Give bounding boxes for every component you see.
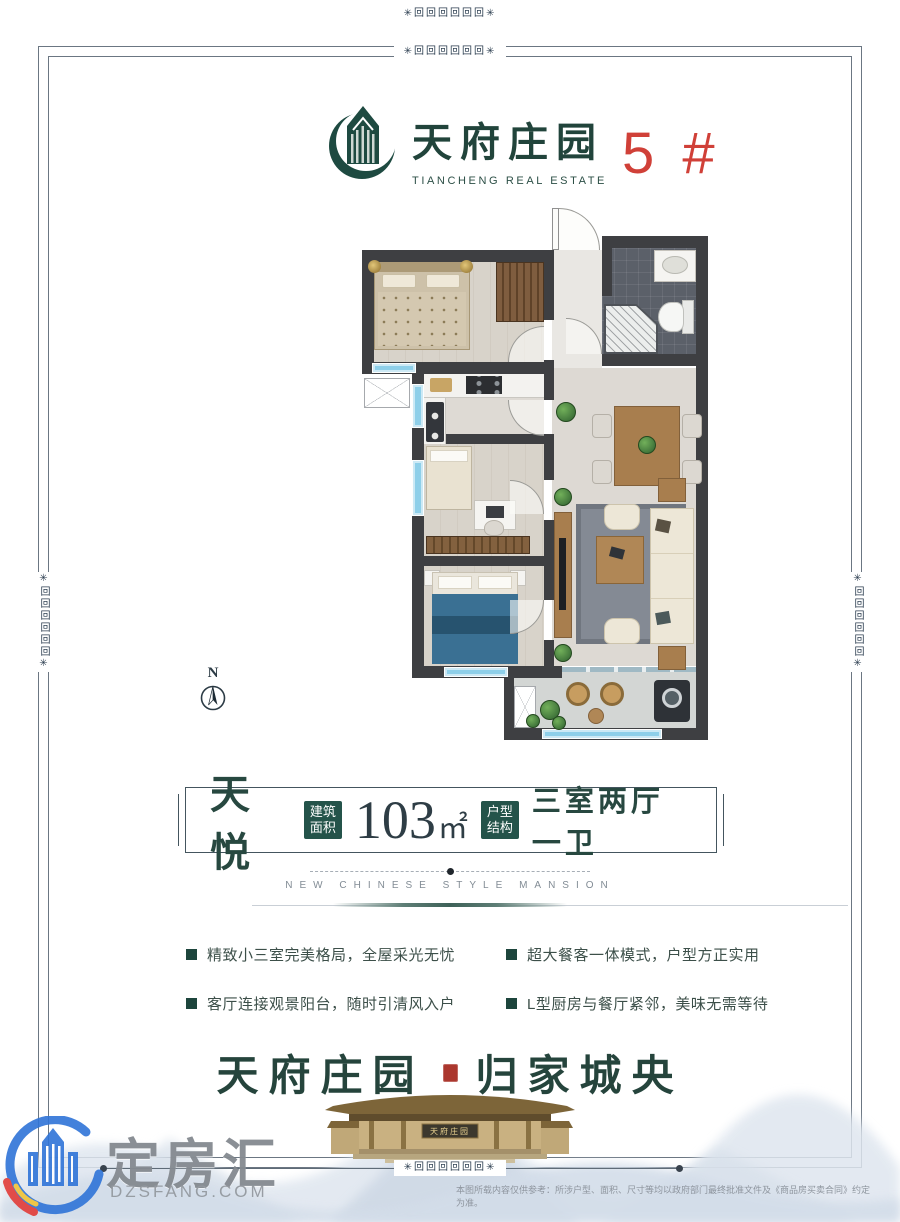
square-bullet-icon <box>186 998 197 1009</box>
square-bullet-icon <box>506 998 517 1009</box>
coffee-table <box>596 536 644 584</box>
layout-badge-top: 户型 <box>481 804 519 820</box>
plant <box>552 716 566 730</box>
wall <box>602 354 696 366</box>
bedside-lamp <box>460 260 473 273</box>
feature-item: L型厨房与餐厅紧邻，美味无需等待 <box>506 993 826 1014</box>
wall <box>544 440 554 480</box>
area-value: 103 <box>355 793 436 847</box>
wall <box>602 236 706 248</box>
compass-north-label: N <box>208 665 219 681</box>
area-badge: 建筑 面积 <box>304 801 342 839</box>
spec-bar: 天悦 建筑 面积 103 ㎡ 户型 结构 三室两厅一卫 <box>185 787 717 853</box>
balcony-table <box>588 708 604 724</box>
pillow <box>438 576 472 589</box>
feature-item: 客厅连接观景阳台，随时引清风入户 <box>186 993 506 1014</box>
lounge-chair <box>566 682 590 706</box>
compass-icon <box>198 682 228 712</box>
gate-building-art: 天府庄园 <box>325 1080 575 1172</box>
meander-ornament-bottom: ✳回回回回回回✳ <box>394 1160 506 1176</box>
brand-logo-icon <box>326 100 400 184</box>
duvet <box>378 292 466 346</box>
meander-ornament-top: ✳回回回回回回✳ <box>394 44 506 60</box>
feature-text: 超大餐客一体模式，户型方正实用 <box>527 944 760 965</box>
armchair <box>604 504 640 530</box>
ac-unit-platform <box>364 378 410 408</box>
poster-canvas: ✳回回回回回回✳ ✳回回回回回回✳ ✳回回回回回回✳ ✳回回回回回回✳ 天府庄园… <box>0 0 900 1222</box>
meander-ornament-left: ✳回回回回回回✳ <box>35 572 51 672</box>
gate-plaque: 天府庄园 <box>430 1126 470 1136</box>
rule-end-dot <box>676 1165 683 1172</box>
features-right-column: 超大餐客一体模式，户型方正实用 L型厨房与餐厅紧邻，美味无需等待 <box>506 944 826 1042</box>
meander-ornament-topmost: ✳回回回回回回✳ <box>395 6 505 22</box>
layout-badge-bottom: 结构 <box>481 820 519 836</box>
feature-item: 精致小三室完美格局，全屋采光无忧 <box>186 944 506 965</box>
watermark-logo-icon <box>0 1116 106 1222</box>
feature-text: 精致小三室完美格局，全屋采光无忧 <box>207 944 455 965</box>
wall <box>544 360 554 400</box>
area-badge-top: 建筑 <box>304 804 342 820</box>
features-left-column: 精致小三室完美格局，全屋采光无忧 客厅连接观景阳台，随时引清风入户 <box>186 944 506 1042</box>
sink-icon <box>662 256 688 274</box>
layout-value: 三室两厅一卫 <box>532 778 692 862</box>
divider-dot <box>447 868 454 875</box>
window <box>444 667 508 677</box>
kitchen-sink <box>426 402 444 442</box>
toilet-bowl <box>658 302 684 332</box>
dining-chair <box>682 414 702 438</box>
lounge-chair <box>600 682 624 706</box>
english-caption: NEW CHINESE STYLE MANSION <box>0 880 900 891</box>
meander-ornament-right: ✳回回回回回回✳ <box>849 572 865 672</box>
stove-icon <box>466 376 502 394</box>
window <box>412 460 424 516</box>
pillow <box>478 576 512 589</box>
washer-drum <box>662 688 682 708</box>
side-table <box>658 478 686 502</box>
area-badge-bottom: 面积 <box>304 820 342 836</box>
wall <box>696 236 708 740</box>
square-bullet-icon <box>506 949 517 960</box>
laptop <box>486 506 504 518</box>
square-bullet-icon <box>186 949 197 960</box>
teal-accent-rule <box>333 903 567 907</box>
feature-item: 超大餐客一体模式，户型方正实用 <box>506 944 826 965</box>
compass: N <box>193 664 233 717</box>
pillow <box>426 274 460 288</box>
throw-pillow <box>655 611 671 625</box>
wall <box>602 236 612 296</box>
cutting-board <box>430 378 452 392</box>
wall <box>362 250 552 262</box>
dining-chair <box>592 460 612 484</box>
tv-icon <box>559 538 566 610</box>
feature-text: L型厨房与餐厅紧邻，美味无需等待 <box>527 993 768 1014</box>
plant <box>638 436 656 454</box>
red-seal <box>443 1064 458 1082</box>
plant <box>526 714 540 728</box>
dining-chair <box>592 414 612 438</box>
window <box>412 384 424 428</box>
unit-name: 天悦 <box>210 762 291 878</box>
pillow <box>382 274 416 288</box>
bed-runner <box>432 616 518 634</box>
entry-door-leaf <box>552 208 559 250</box>
disclaimer: 本图所载内容仅供参考：所涉户型、面积、尺寸等均以政府部门最终批准文件及《商品房买… <box>456 1183 872 1209</box>
throw-pillow <box>655 519 671 534</box>
window <box>372 363 416 373</box>
wall <box>544 640 554 672</box>
area-unit: ㎡ <box>438 803 468 847</box>
plant <box>556 402 576 422</box>
feature-text: 客厅连接观景阳台，随时引清风入户 <box>207 993 455 1014</box>
wardrobe <box>426 536 530 554</box>
plant <box>554 644 572 662</box>
plant <box>554 488 572 506</box>
wardrobe <box>496 262 544 322</box>
pillow <box>430 450 468 462</box>
floor-plan <box>356 220 712 750</box>
desk-chair <box>484 520 504 536</box>
window <box>542 729 662 739</box>
side-table <box>658 646 686 670</box>
layout-badge: 户型 结构 <box>481 801 519 839</box>
brand-title: 天府庄园 <box>412 110 607 168</box>
watermark-site: DZSFANG.COM <box>110 1182 268 1202</box>
building-number: 5 # <box>622 120 721 187</box>
bed-headboard <box>374 262 470 272</box>
armchair <box>604 618 640 644</box>
wall <box>544 250 554 320</box>
bedside-lamp <box>368 260 381 273</box>
wall <box>412 556 554 566</box>
brand-subtitle: TIANCHENG REAL ESTATE <box>412 175 607 187</box>
